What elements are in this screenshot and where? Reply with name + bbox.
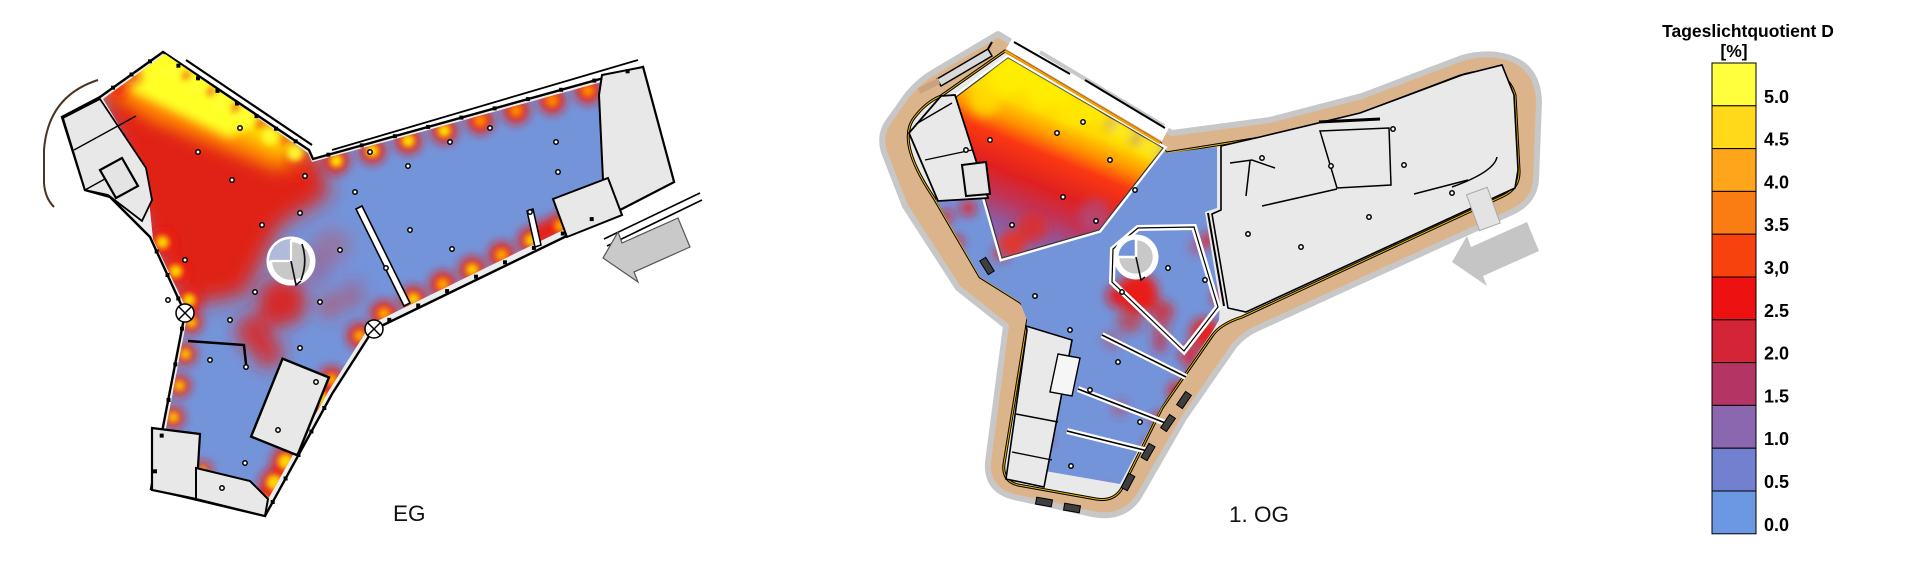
svg-text:Tageslichtquotient D: Tageslichtquotient D — [1662, 21, 1834, 41]
svg-text:[%]: [%] — [1720, 41, 1747, 61]
svg-text:4.0: 4.0 — [1764, 172, 1789, 192]
svg-text:1.0: 1.0 — [1764, 429, 1789, 449]
svg-text:0.5: 0.5 — [1764, 472, 1789, 492]
svg-text:2.5: 2.5 — [1764, 301, 1789, 321]
svg-text:3,0: 3,0 — [1764, 258, 1789, 278]
svg-text:0.0: 0.0 — [1764, 515, 1789, 535]
svg-text:2.0: 2.0 — [1764, 344, 1789, 364]
svg-text:EG: EG — [393, 501, 426, 526]
svg-text:3.5: 3.5 — [1764, 215, 1789, 235]
svg-text:1. OG: 1. OG — [1229, 502, 1289, 527]
svg-text:5.0: 5.0 — [1764, 87, 1789, 107]
svg-text:1.5: 1.5 — [1764, 386, 1789, 406]
svg-text:4.5: 4.5 — [1764, 130, 1789, 150]
